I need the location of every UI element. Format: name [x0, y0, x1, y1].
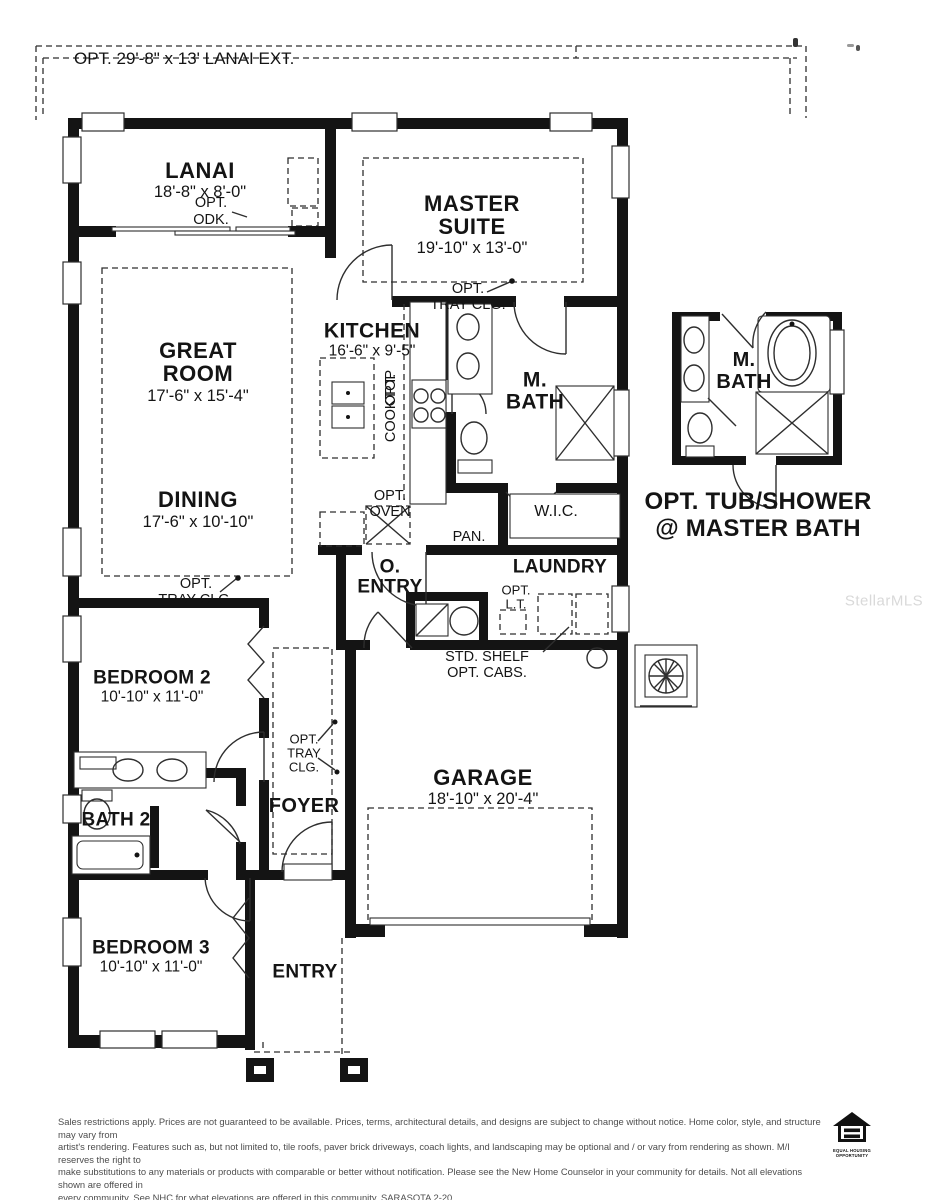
label-great-room-2: ROOM — [163, 363, 233, 385]
label-wic: W.I.C. — [534, 504, 578, 520]
master-bath-detail — [672, 312, 844, 508]
label-opt-lanai-ext: OPT. 29'-8" x 13' LANAI EXT. — [74, 50, 294, 67]
label-garage-dims: 18'-10" x 20'-4" — [428, 791, 539, 808]
label-laundry: LAUNDRY — [513, 558, 607, 577]
label-opt-lt-1: OPT. — [502, 584, 531, 597]
label-great-tray-2: TRAY CLG. — [158, 593, 233, 608]
disclaimer-line: make substitutions to any materials or p… — [58, 1166, 823, 1191]
label-kitchen: KITCHEN — [324, 321, 420, 342]
label-opt-odk-1: OPT. — [195, 196, 227, 211]
label-bedroom3: BEDROOM 3 — [92, 939, 210, 958]
label-opt-tub-caption-2: @ MASTER BATH — [655, 517, 861, 541]
label-opt-tub-caption-1: OPT. TUB/SHOWER — [644, 490, 871, 514]
label-mbath-detail-2: BATH — [716, 372, 771, 392]
equal-housing-house-icon — [833, 1112, 871, 1144]
label-mbath-1: M. — [523, 370, 547, 391]
label-entry: ENTRY — [272, 963, 337, 982]
label-o-entry-1: O. — [380, 558, 401, 577]
ac-unit — [635, 645, 697, 707]
label-mbath-detail-1: M. — [733, 350, 756, 370]
label-master-tray-2: TRAY CLG. — [430, 298, 505, 313]
label-foyer-tray-1: OPT. — [290, 733, 319, 746]
label-opt-cooktop-2: COOKTOP — [384, 370, 399, 442]
label-great-tray-1: OPT. — [180, 577, 212, 592]
label-bedroom2-dims: 10'-10" x 11'-0" — [101, 689, 204, 705]
garage-door — [370, 918, 590, 925]
label-pantry: PAN. — [453, 530, 486, 545]
garage-slab-outline — [368, 808, 592, 920]
label-mbath-2: BATH — [506, 392, 564, 413]
scan-speck — [847, 44, 854, 47]
stellar-mls-watermark: StellarMLS — [845, 594, 923, 609]
label-foyer-tray-2: TRAY — [287, 747, 321, 760]
label-opt-oven-2: OVEN — [369, 505, 410, 520]
scan-speck — [856, 45, 860, 51]
label-o-entry-2: ENTRY — [357, 578, 422, 597]
equal-housing-logo: EQUAL HOUSING OPPORTUNITY — [830, 1112, 874, 1158]
disclaimer-text: Sales restrictions apply. Prices are not… — [58, 1116, 823, 1200]
floor-plan-page: .w{fill:#141414;} .thin{stroke:#2e2e2e;s… — [0, 0, 930, 1200]
label-opt-odk-2: ODK. — [193, 213, 228, 228]
label-bedroom2: BEDROOM 2 — [93, 669, 211, 688]
walls — [68, 118, 628, 1050]
label-foyer: FOYER — [269, 796, 339, 816]
opt-odk-outline — [288, 158, 318, 226]
label-great-room-1: GREAT — [159, 340, 237, 362]
label-great-room-dims: 17'-6" x 15'-4" — [147, 388, 248, 405]
equal-housing-text-2: OPPORTUNITY — [830, 1154, 874, 1159]
disclaimer-line: every community. See NHC for what elevat… — [58, 1192, 823, 1200]
entry-porch — [246, 938, 368, 1082]
label-opt-oven-1: OPT. — [374, 489, 406, 504]
scan-speck — [793, 38, 798, 47]
label-foyer-tray-3: CLG. — [289, 761, 319, 774]
label-lanai: LANAI — [165, 160, 235, 182]
label-dining: DINING — [158, 489, 238, 511]
label-bedroom3-dims: 10'-10" x 11'-0" — [100, 959, 203, 975]
label-dining-dims: 17'-6" x 10'-10" — [143, 514, 254, 531]
label-bath2: BATH 2 — [81, 811, 150, 830]
sliding-glass-door — [112, 227, 295, 235]
floor-plan-drawing: .w{fill:#141414;} .thin{stroke:#2e2e2e;s… — [0, 0, 930, 1200]
label-master-tray-1: OPT. — [452, 282, 484, 297]
label-master-suite-2: SUITE — [438, 216, 505, 238]
label-master-suite-1: MASTER — [424, 193, 520, 215]
label-std-shelf-2: OPT. CABS. — [447, 666, 527, 681]
disclaimer-line: Sales restrictions apply. Prices are not… — [58, 1116, 823, 1141]
disclaimer-line: artist's rendering. Features such as, bu… — [58, 1141, 823, 1166]
label-opt-lt-2: L.T. — [506, 598, 527, 611]
label-kitchen-dims: 16'-6" x 9'-5" — [329, 343, 416, 359]
label-garage: GARAGE — [433, 767, 533, 789]
label-master-dims: 19'-10" x 13'-0" — [417, 240, 528, 257]
label-std-shelf-1: STD. SHELF — [445, 650, 529, 665]
